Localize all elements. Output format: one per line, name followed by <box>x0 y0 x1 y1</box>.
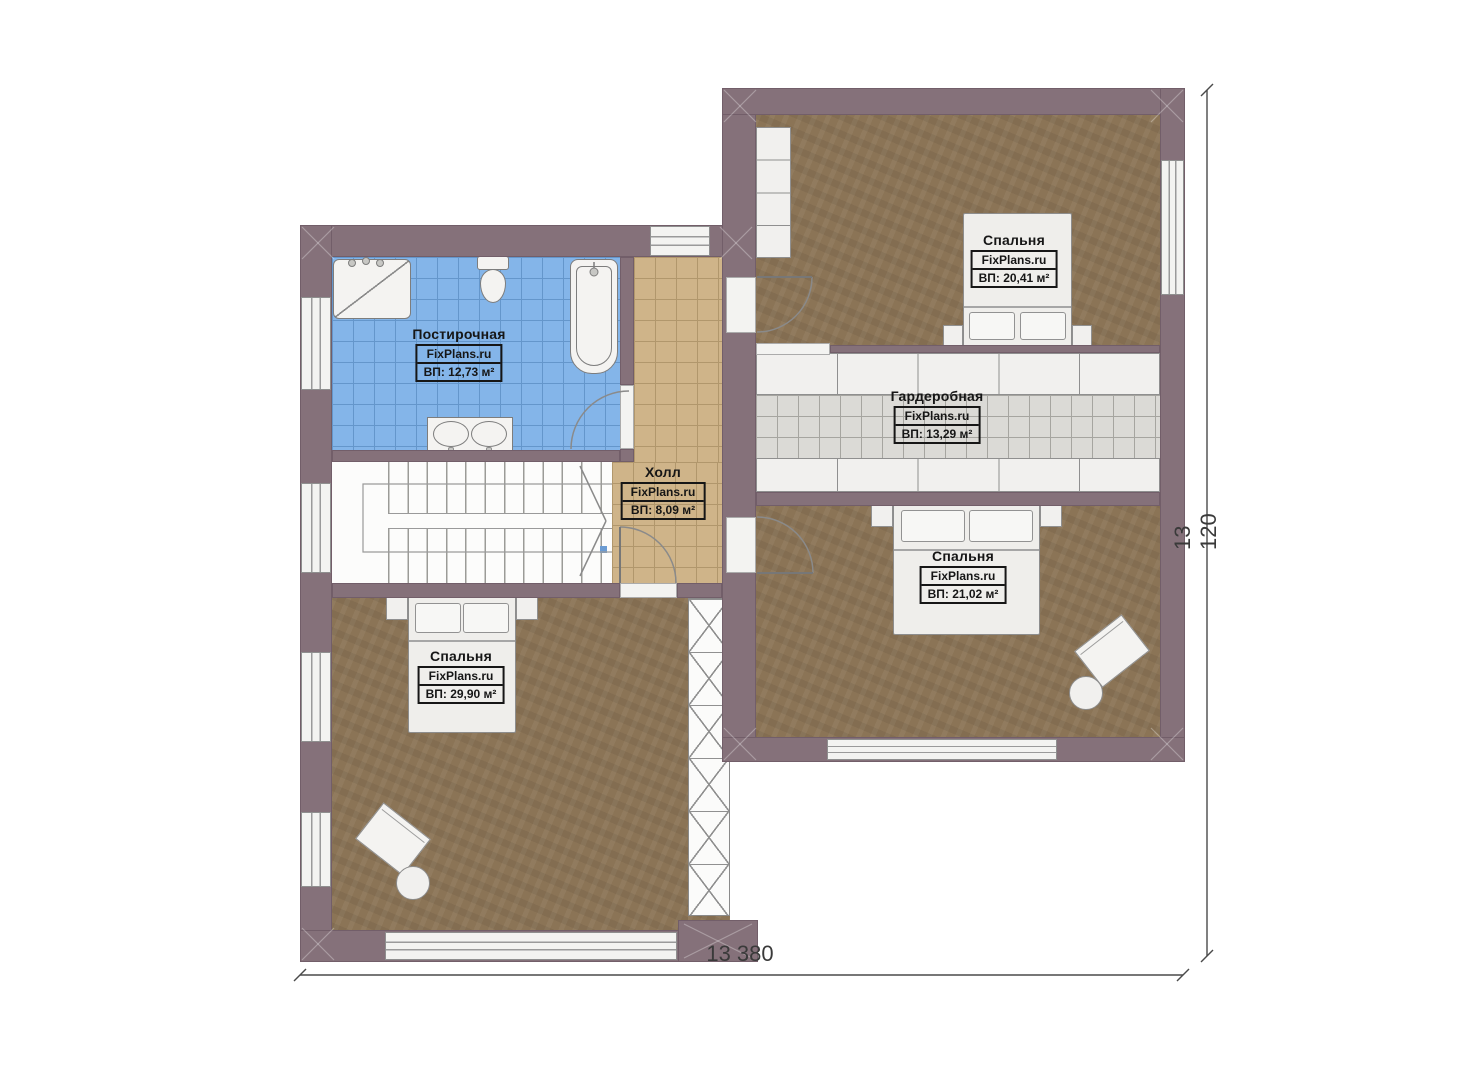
pillow <box>1020 312 1066 340</box>
bed-blanket-line <box>409 640 515 642</box>
bedroom-top-right-floor <box>756 115 1160 345</box>
watermark-text: FixPlans.ru <box>973 252 1056 270</box>
nightstand <box>943 325 963 347</box>
window-hall-top <box>650 226 710 256</box>
opening-wardrobe-corridor <box>756 343 830 355</box>
wardrobe-cabinet-column <box>756 127 791 258</box>
wall-bedroom-wardrobe <box>830 345 1160 353</box>
sink-right <box>471 421 507 447</box>
sink-left <box>433 421 469 447</box>
window-left-4 <box>301 812 331 887</box>
wardrobe-cabinets-bottom <box>756 458 1160 492</box>
room-info-box: FixPlans.ru ВП: 12,73 м² <box>416 344 503 382</box>
wall-hall-bedroom-right <box>677 583 722 598</box>
wall-right-block-top <box>722 88 1185 115</box>
room-area: ВП: 21,02 м² <box>922 586 1005 602</box>
room-name: Спальня <box>971 232 1058 248</box>
room-name: Спальня <box>920 548 1007 564</box>
room-area: ВП: 29,90 м² <box>420 686 503 702</box>
doorway-bedroom-bottom-left <box>620 583 677 598</box>
nightstand <box>871 503 893 527</box>
hall-floor-upper <box>634 257 722 462</box>
watermark-text: FixPlans.ru <box>922 568 1005 586</box>
wall-laundry-hall-upper <box>620 257 634 385</box>
watermark-text: FixPlans.ru <box>420 668 503 686</box>
nightstand <box>1040 503 1062 527</box>
bed-blanket-line <box>964 306 1071 308</box>
wall-hall-bedroom-left <box>332 583 620 598</box>
window-bedroom-left-bottom <box>385 932 677 960</box>
floor-plan-page: Постирочная FixPlans.ru ВП: 12,73 м² Хол… <box>0 0 1473 1080</box>
window-bedroom-bottom-right <box>827 739 1057 760</box>
nightstand <box>1072 325 1092 347</box>
room-area: ВП: 8,09 м² <box>623 502 704 518</box>
room-name: Гардеробная <box>891 388 984 404</box>
staircase-arrow-shaft <box>388 513 612 529</box>
nightstand <box>516 596 538 620</box>
room-area: ВП: 13,29 м² <box>896 426 979 442</box>
room-name: Холл <box>621 464 706 480</box>
room-label-hall: Холл FixPlans.ru ВП: 8,09 м² <box>621 464 706 520</box>
dimension-height: 13 120 <box>1166 490 1226 550</box>
wall-shared-column <box>722 88 756 762</box>
room-info-box: FixPlans.ru ВП: 8,09 м² <box>621 482 706 520</box>
stool <box>1069 676 1103 710</box>
room-info-box: FixPlans.ru ВП: 21,02 м² <box>920 566 1007 604</box>
doorway-laundry <box>620 385 634 449</box>
stool <box>396 866 430 900</box>
room-info-box: FixPlans.ru ВП: 29,90 м² <box>418 666 505 704</box>
watermark-text: FixPlans.ru <box>418 346 501 364</box>
room-area: ВП: 20,41 м² <box>973 270 1056 286</box>
room-info-box: FixPlans.ru ВП: 13,29 м² <box>894 406 981 444</box>
room-area: ВП: 12,73 м² <box>418 364 501 380</box>
nightstand <box>386 596 408 620</box>
room-label-laundry: Постирочная FixPlans.ru ВП: 12,73 м² <box>412 326 505 382</box>
room-name: Постирочная <box>412 326 505 342</box>
bathtub-inner <box>576 266 612 366</box>
window-left-3 <box>301 652 331 742</box>
pillow <box>969 312 1015 340</box>
toilet-tank <box>477 256 509 270</box>
wall-wardrobe-bedroom <box>756 492 1160 506</box>
wall-laundry-stairs <box>332 450 620 462</box>
pillow <box>463 603 509 633</box>
dimension-width: 13 380 <box>690 941 790 967</box>
room-label-bedroom-bottom-right: Спальня FixPlans.ru ВП: 21,02 м² <box>920 548 1007 604</box>
doorway-bedroom-top-right <box>726 277 756 333</box>
room-info-box: FixPlans.ru ВП: 20,41 м² <box>971 250 1058 288</box>
window-left-2 <box>301 483 331 573</box>
room-label-bedroom-top-right: Спальня FixPlans.ru ВП: 20,41 м² <box>971 232 1058 288</box>
pillow <box>415 603 461 633</box>
room-name: Спальня <box>418 648 505 664</box>
window-bedroom-top-right <box>1161 160 1184 295</box>
pillow <box>901 510 965 542</box>
watermark-text: FixPlans.ru <box>623 484 704 502</box>
wall-laundry-hall-lower <box>620 449 634 462</box>
stair-marker-dot <box>600 546 607 553</box>
room-label-bedroom-bottom-left: Спальня FixPlans.ru ВП: 29,90 м² <box>418 648 505 704</box>
room-label-wardrobe: Гардеробная FixPlans.ru ВП: 13,29 м² <box>891 388 984 444</box>
watermark-text: FixPlans.ru <box>896 408 979 426</box>
window-left-1 <box>301 297 331 390</box>
doorway-bedroom-bottom-right <box>726 517 756 573</box>
shower-tray <box>333 259 411 319</box>
pillow <box>969 510 1033 542</box>
